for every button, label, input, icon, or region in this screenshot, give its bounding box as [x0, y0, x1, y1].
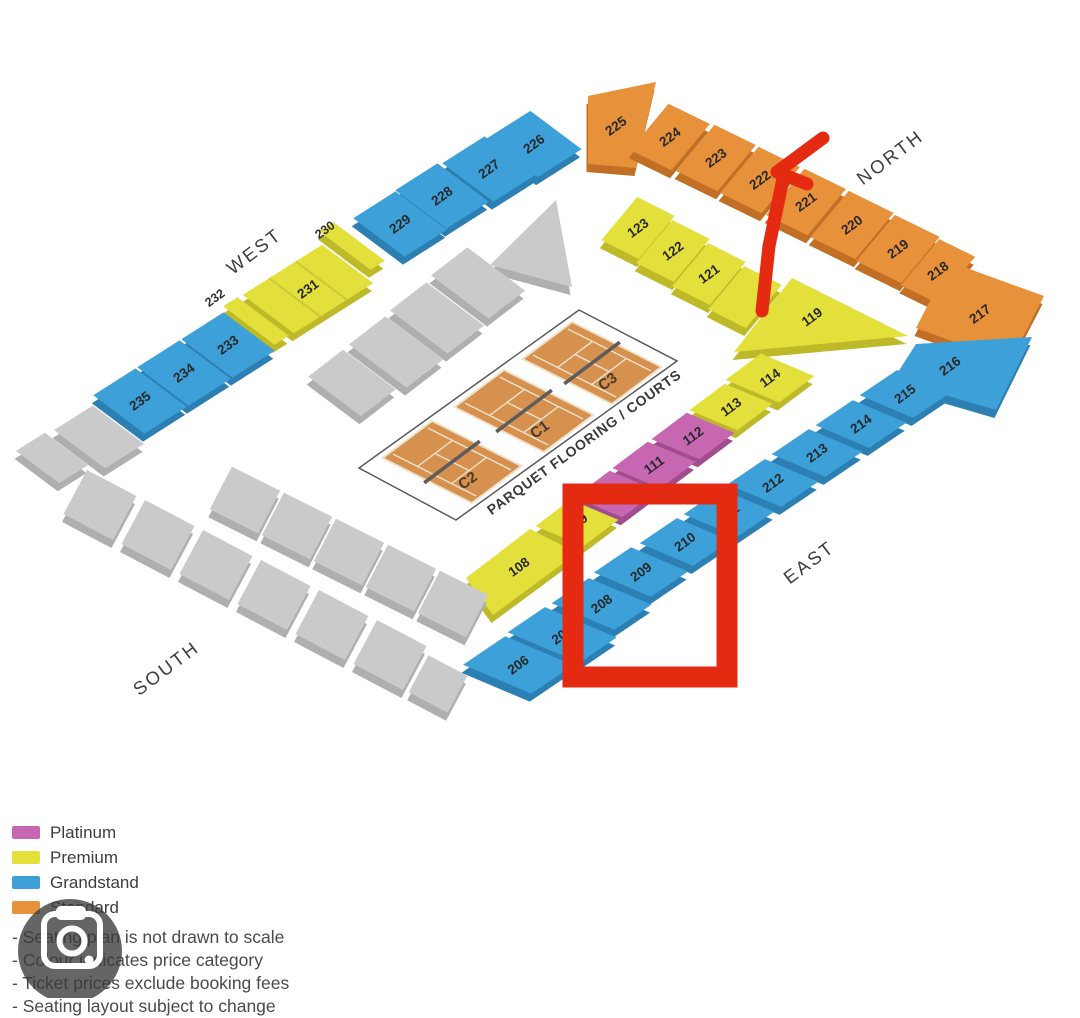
seating-map: C3C1C2PARQUET FLOORING / COURTS 22522422… — [0, 0, 1080, 998]
section-sw-3[interactable] — [178, 530, 253, 608]
camera-overlay[interactable] — [18, 899, 122, 998]
section-sw-5[interactable] — [294, 590, 369, 668]
compass-label-south: SOUTH — [129, 636, 203, 699]
section-sw-2[interactable] — [120, 500, 195, 578]
note-line-4: - Seating layout subject to change — [12, 995, 289, 1018]
court-C2: C2 — [383, 421, 522, 503]
seating-plan-page: { "canvas": { "width": 1080, "height": 9… — [0, 0, 1080, 998]
section-sw-4[interactable] — [236, 560, 311, 638]
compass-label-north: NORTH — [853, 125, 928, 189]
annotation-arrow-head-1 — [777, 138, 823, 172]
section-sw-1[interactable] — [62, 470, 137, 548]
compass-label-east: EAST — [779, 536, 838, 588]
compass-label-west: WEST — [222, 224, 285, 279]
